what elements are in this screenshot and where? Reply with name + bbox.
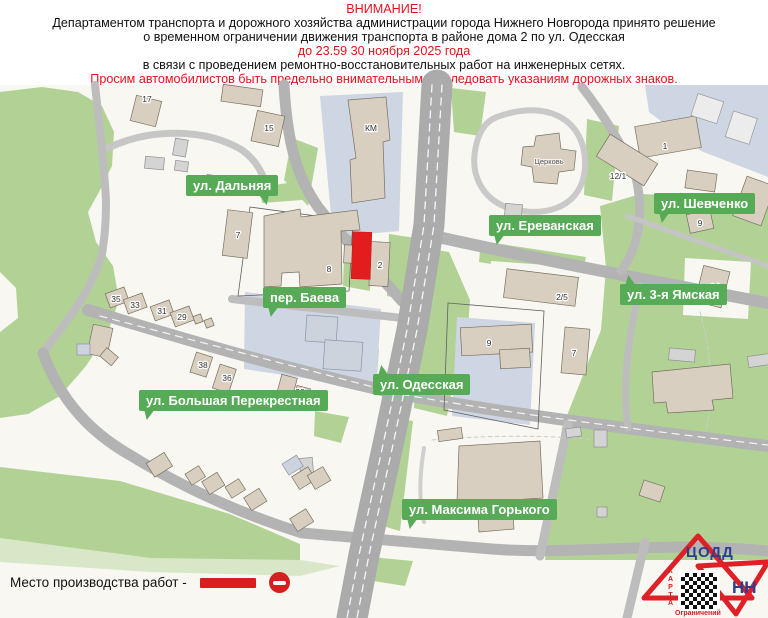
building-number: 9 bbox=[698, 218, 703, 228]
building-number: 9 bbox=[487, 338, 492, 348]
qr-code bbox=[678, 570, 720, 612]
building-number: 29 bbox=[177, 312, 187, 322]
building-number: 33 bbox=[130, 300, 140, 310]
building-number: 7 bbox=[572, 348, 577, 358]
logo-ogranicheniy: Ограничений bbox=[675, 610, 721, 617]
building-number: КМ bbox=[365, 123, 377, 133]
building-number: 8 bbox=[327, 264, 332, 274]
building-number: 7 bbox=[236, 230, 241, 240]
no-entry-sign-icon bbox=[269, 572, 290, 593]
street-label-erevanskaya: ул. Ереванская bbox=[489, 215, 601, 236]
street-label-text: ул. Шевченко bbox=[661, 196, 748, 211]
street-label-text: ул. Одесская bbox=[380, 377, 463, 392]
street-label-baeva: пер. Баева bbox=[263, 287, 346, 308]
street-label-text: ул. Большая Перекрестная bbox=[146, 393, 321, 408]
legend: Место производства работ - bbox=[10, 572, 290, 593]
street-label-perekrestnaya: ул. Большая Перекрестная bbox=[139, 390, 328, 411]
street-label-text: ул. Максима Горького bbox=[409, 502, 550, 517]
street-label-text: ул. Дальняя bbox=[193, 178, 271, 193]
work-site-marker bbox=[351, 232, 372, 280]
building-number: 31 bbox=[157, 306, 167, 316]
building-number: 2/5 bbox=[556, 292, 568, 302]
building-number: 1 bbox=[663, 141, 668, 151]
street-label-shevchenko: ул. Шевченко bbox=[654, 193, 755, 214]
street-label-gorkogo: ул. Максима Горького bbox=[402, 499, 557, 520]
building-number: 36 bbox=[222, 373, 232, 383]
street-label-yamskaya: ул. 3-я Ямская bbox=[620, 284, 727, 305]
street-label-text: ул. 3-я Ямская bbox=[627, 287, 720, 302]
building-number: 2 bbox=[378, 260, 383, 270]
building-number: 17 bbox=[142, 94, 152, 104]
logo-karta: КАРТА bbox=[667, 568, 674, 608]
logo-org: ЦОДД bbox=[686, 544, 734, 561]
street-label-dalnyaya: ул. Дальняя bbox=[186, 175, 278, 196]
street-label-text: ул. Ереванская bbox=[496, 218, 594, 233]
church-label: Церковь bbox=[534, 157, 563, 166]
street-label-text: пер. Баева bbox=[270, 290, 339, 305]
building-number: 35 bbox=[111, 294, 121, 304]
building-number: 12/1 bbox=[610, 171, 627, 181]
building-number: 15 bbox=[264, 123, 274, 133]
street-label-odesskaya: ул. Одесская bbox=[373, 374, 470, 395]
no-entry-dash bbox=[273, 581, 286, 585]
legend-label: Место производства работ - bbox=[10, 575, 187, 590]
building-number: 38 bbox=[198, 360, 208, 370]
logo-city: НН bbox=[732, 578, 757, 598]
codd-logo: ЦОДД НН КАРТА Ограничений bbox=[628, 522, 768, 618]
work-site-bar bbox=[200, 578, 256, 588]
